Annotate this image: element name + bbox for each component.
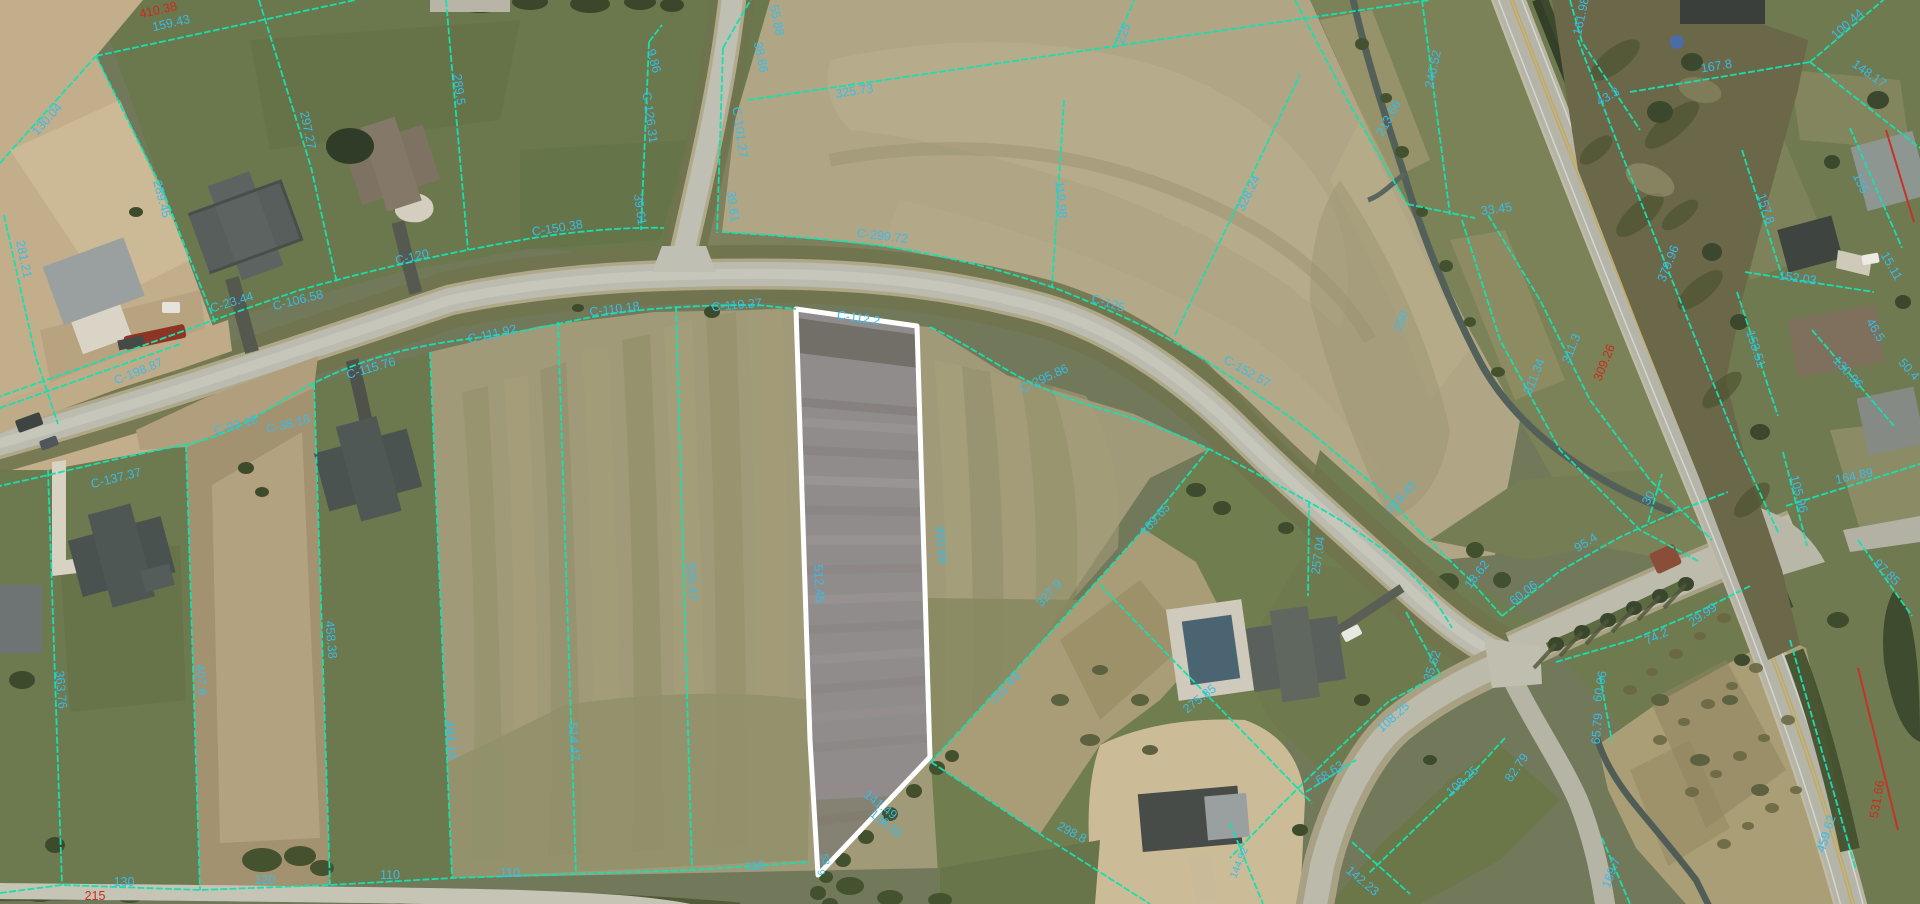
svg-text:110: 110: [744, 858, 765, 873]
svg-text:407.8: 407.8: [193, 663, 210, 695]
svg-text:215: 215: [85, 889, 106, 903]
svg-text:120: 120: [255, 873, 276, 887]
svg-text:514.47: 514.47: [566, 722, 583, 761]
svg-text:512.45: 512.45: [811, 564, 827, 603]
svg-text:110: 110: [500, 866, 520, 880]
svg-text:130: 130: [114, 875, 135, 889]
svg-text:65.79: 65.79: [1589, 712, 1606, 744]
svg-text:520.47: 520.47: [684, 562, 701, 601]
svg-text:110: 110: [380, 868, 400, 882]
